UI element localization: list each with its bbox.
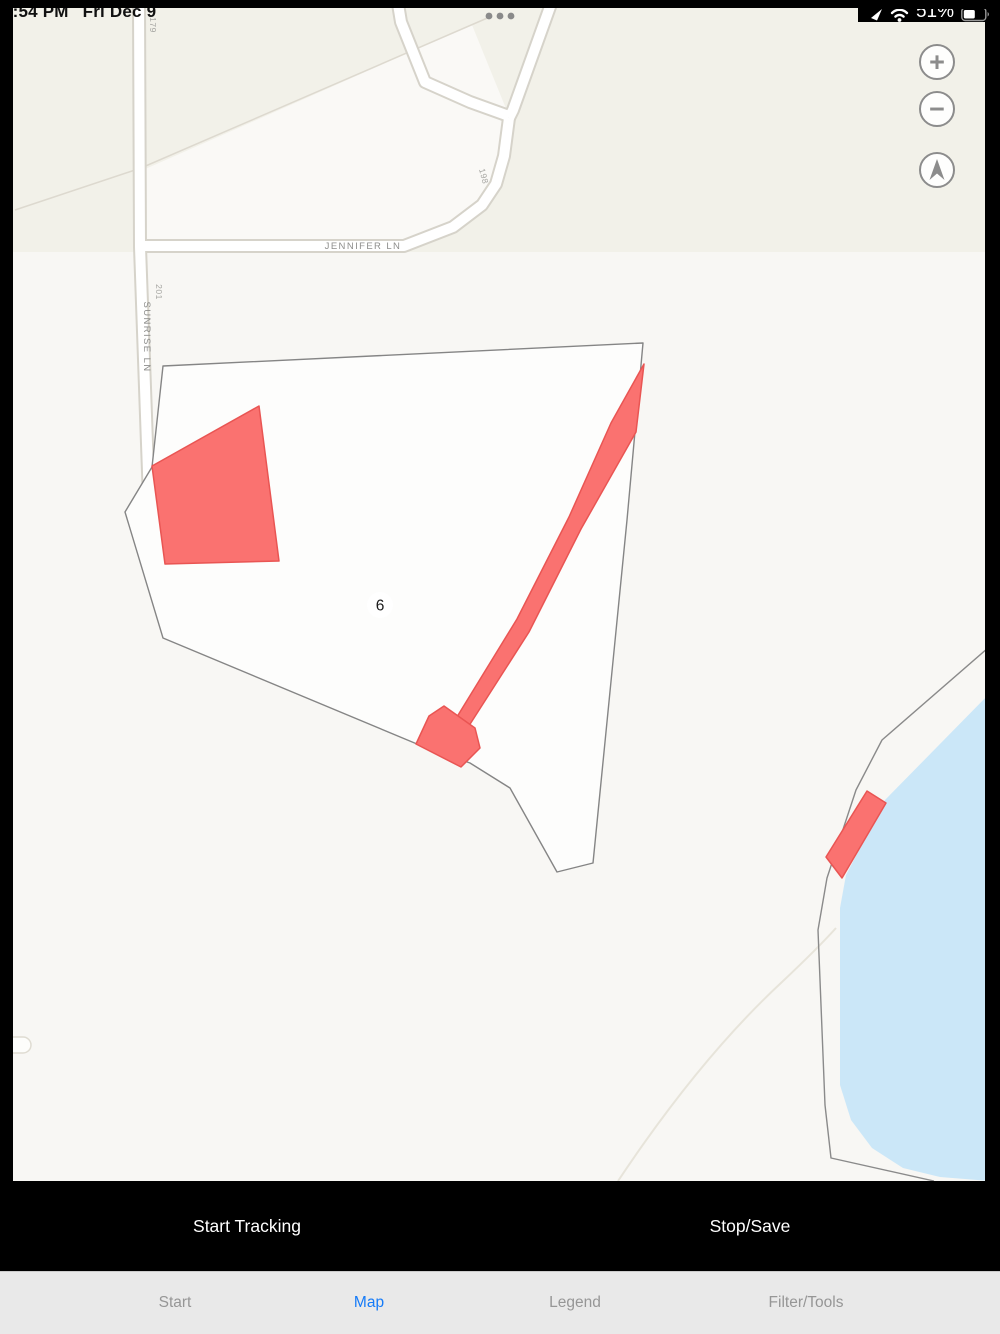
tab-legend[interactable]: Legend xyxy=(549,1272,601,1334)
zoom-in-button[interactable]: + xyxy=(919,44,955,80)
tab-map[interactable]: Map xyxy=(354,1272,384,1334)
left-black-strip xyxy=(0,0,13,1181)
app-screen: 6 JENNIFER LN SUNRISE LN 179 201 198 3:5… xyxy=(0,0,1000,1334)
stop-save-button[interactable]: Stop/Save xyxy=(710,1181,791,1271)
status-clip-cover xyxy=(858,0,1000,9)
plus-icon: + xyxy=(929,49,945,76)
tab-filter-tools[interactable]: Filter/Tools xyxy=(769,1272,844,1334)
multitasking-indicator[interactable] xyxy=(486,13,515,20)
right-black-strip xyxy=(985,0,1000,1181)
minus-icon: − xyxy=(929,96,945,123)
map-view[interactable]: 6 JENNIFER LN SUNRISE LN 179 201 198 xyxy=(0,0,1000,1334)
tab-bar: Start Map Legend Filter/Tools xyxy=(0,1271,1000,1334)
tab-start[interactable]: Start xyxy=(159,1272,192,1334)
address-label-201: 201 xyxy=(154,284,164,300)
compass-north-icon xyxy=(927,159,947,181)
zoom-out-button[interactable]: − xyxy=(919,91,955,127)
wifi-icon xyxy=(890,7,909,22)
status-bar-right: 51% xyxy=(858,0,1000,22)
location-arrow-icon xyxy=(870,8,883,22)
street-label-jennifer-ln: JENNIFER LN xyxy=(325,241,402,252)
start-tracking-button[interactable]: Start Tracking xyxy=(193,1181,301,1271)
street-label-sunrise-ln: SUNRISE LN xyxy=(141,301,152,372)
compass-button[interactable] xyxy=(919,152,955,188)
battery-icon xyxy=(961,7,990,22)
action-bar: Start Tracking Stop/Save xyxy=(0,1181,1000,1271)
top-black-bar xyxy=(0,0,1000,8)
parcel-number-label: 6 xyxy=(376,598,385,615)
